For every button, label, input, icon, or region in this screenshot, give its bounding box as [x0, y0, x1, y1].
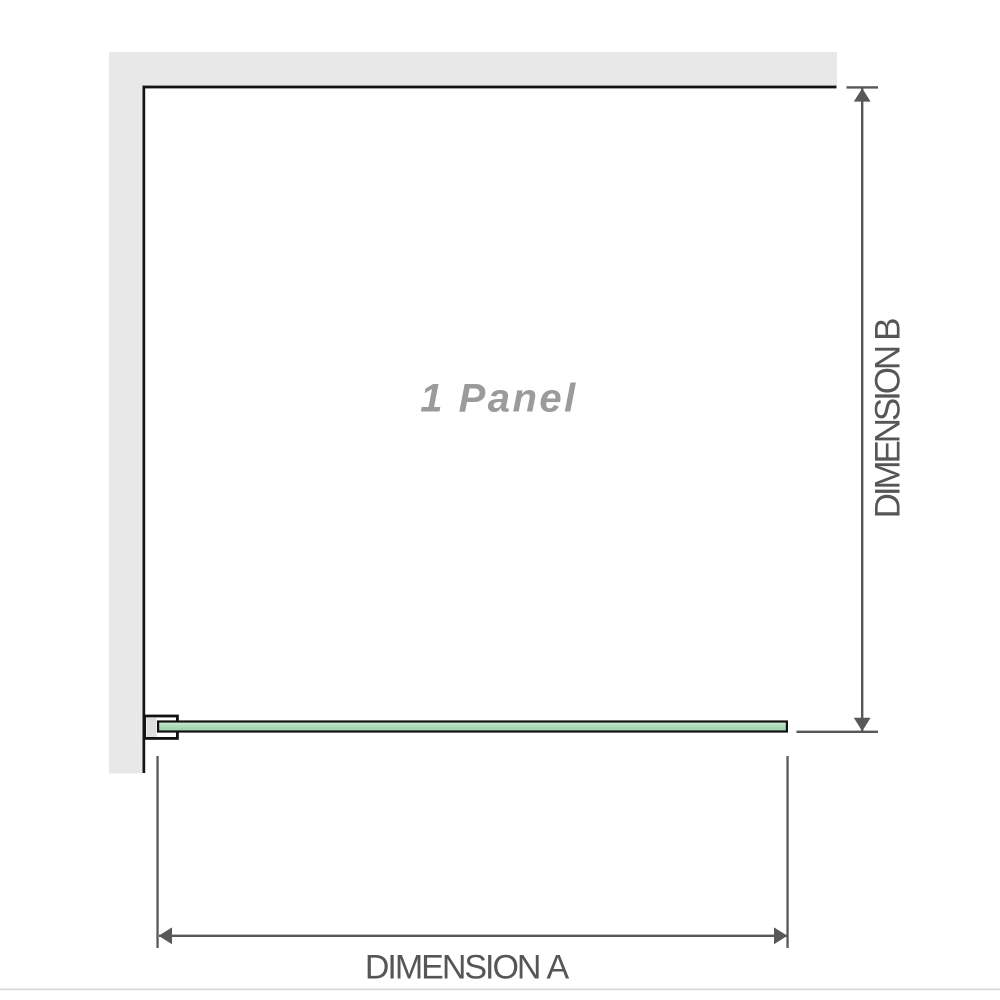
svg-text:DIMENSIONA: DIMENSIONA: [365, 949, 570, 987]
svg-text:DIMENSIONB: DIMENSIONB: [869, 319, 908, 518]
svg-text:1 Panel: 1 Panel: [420, 377, 578, 421]
